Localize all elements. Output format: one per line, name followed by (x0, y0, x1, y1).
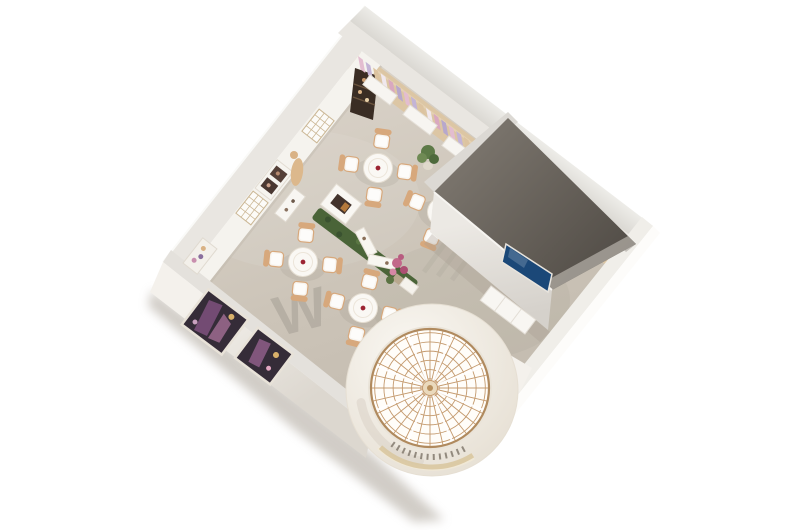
chair (322, 256, 343, 275)
floorplan-render: W (0, 0, 800, 530)
chair (290, 281, 309, 302)
chair (372, 128, 392, 150)
chair (263, 249, 284, 268)
chair (297, 222, 316, 243)
chair (364, 187, 384, 209)
render-scene: W (0, 0, 800, 530)
dome-finial-center (427, 385, 433, 391)
chair (338, 154, 360, 174)
chair (397, 162, 419, 182)
dark-bookshelf-cabinet (350, 68, 378, 120)
